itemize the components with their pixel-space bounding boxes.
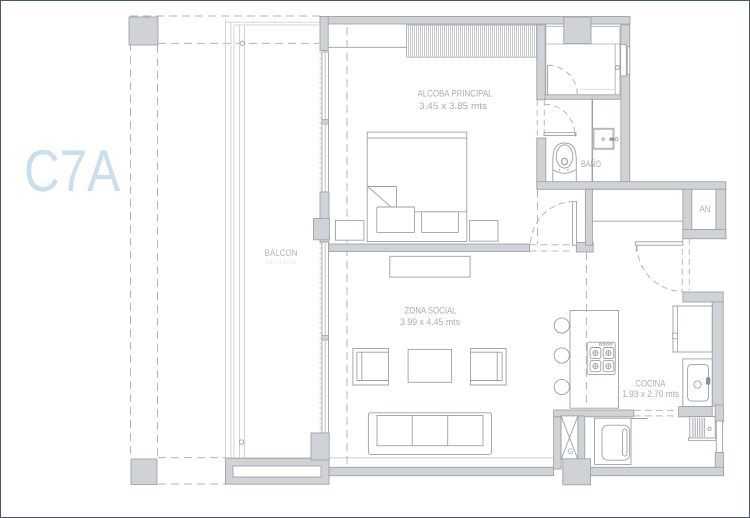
svg-text:C7A: C7A — [24, 138, 121, 204]
svg-text:1.30 x 4.90 mts: 1.30 x 4.90 mts — [266, 259, 296, 266]
svg-text:BAÑO: BAÑO — [581, 158, 601, 170]
svg-text:ZONA SOCIAL: ZONA SOCIAL — [405, 306, 457, 317]
svg-text:AN: AN — [700, 204, 711, 215]
svg-text:G: G — [567, 447, 573, 456]
svg-text:BALCON: BALCON — [265, 248, 298, 259]
svg-text:3.45 x 3.85 mts: 3.45 x 3.85 mts — [419, 101, 487, 112]
svg-text:1.93 x 2.70 mts: 1.93 x 2.70 mts — [622, 389, 679, 400]
svg-text:ALCOBA PRINCIPAL: ALCOBA PRINCIPAL — [418, 89, 493, 100]
svg-text:3.99 x 4.45 mts: 3.99 x 4.45 mts — [400, 317, 460, 328]
